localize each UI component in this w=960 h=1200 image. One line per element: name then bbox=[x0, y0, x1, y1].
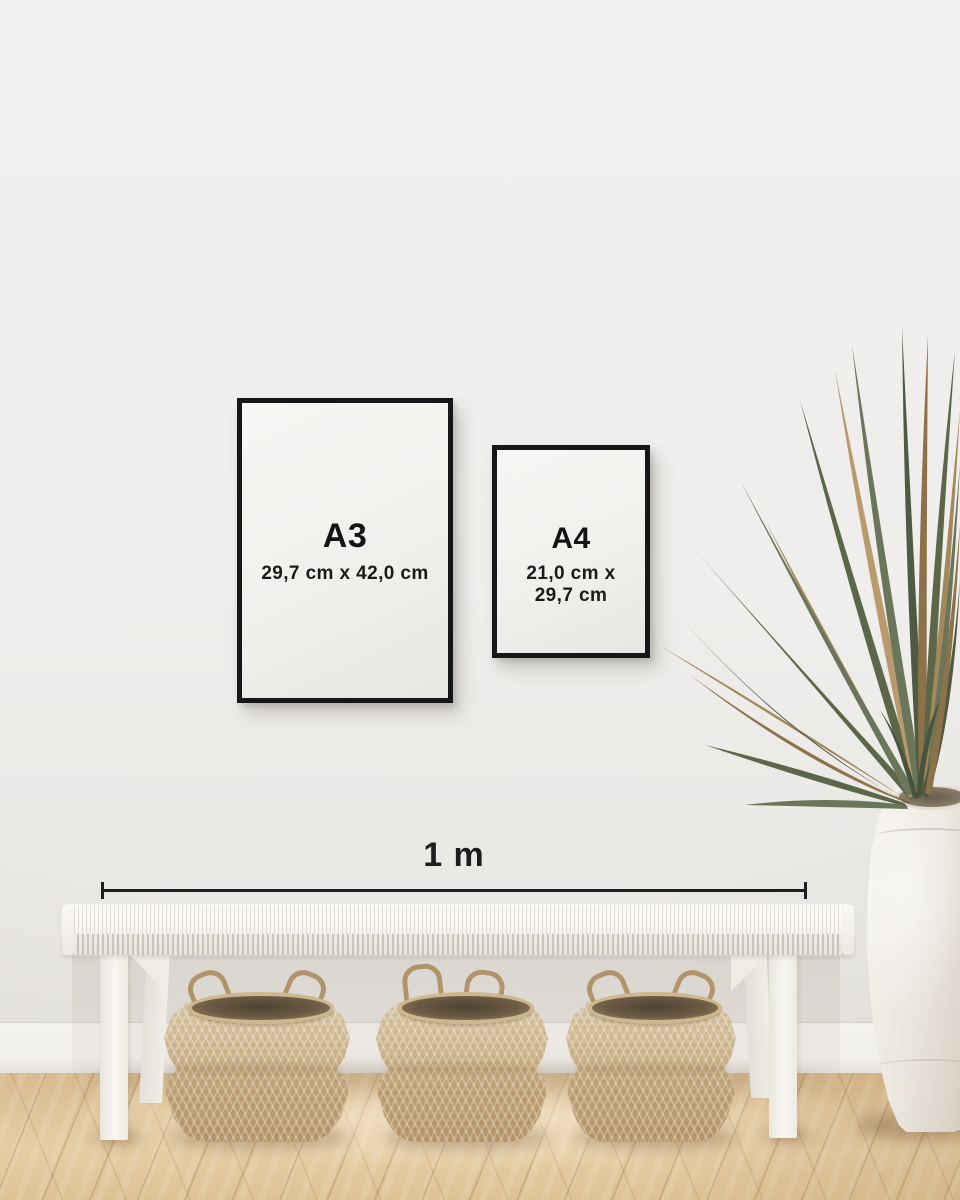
scale-tick-right bbox=[804, 882, 807, 899]
basket-opening bbox=[188, 992, 334, 1024]
bench-leg-front-right bbox=[769, 950, 797, 1138]
basket-fold-line bbox=[383, 1063, 541, 1075]
bench-end-cap-left bbox=[62, 905, 74, 955]
seagrass-basket-2 bbox=[376, 968, 548, 1142]
room-scene: A3 29,7 cm x 42,0 cm A4 21,0 cm x 29,7 c… bbox=[0, 0, 960, 1200]
vase-groove bbox=[876, 1059, 960, 1075]
seagrass-basket-3 bbox=[566, 968, 736, 1142]
bench-woven-seat bbox=[62, 905, 854, 934]
basket-opening bbox=[398, 992, 533, 1024]
a4-dimensions-line2: 29,7 cm bbox=[526, 585, 615, 607]
bench-corner-brace-right bbox=[731, 953, 769, 991]
palm-plant bbox=[610, 315, 960, 810]
poster-frame-a3: A3 29,7 cm x 42,0 cm bbox=[237, 398, 453, 703]
scale-label: 1 m bbox=[101, 836, 807, 875]
bench-end-cap-right bbox=[842, 905, 854, 955]
scale-line bbox=[101, 889, 807, 892]
a4-dimensions: 21,0 cm x 29,7 cm bbox=[526, 563, 615, 608]
a4-dimensions-line1: 21,0 cm x bbox=[526, 563, 615, 585]
bench-leg-front-left bbox=[100, 950, 128, 1140]
basket-fold-line bbox=[171, 1063, 342, 1075]
bench-seat-front-edge bbox=[62, 934, 854, 955]
seagrass-basket-1 bbox=[164, 968, 350, 1142]
a3-size-label: A3 bbox=[261, 519, 428, 555]
palm-fronds bbox=[662, 327, 960, 809]
scale-tick-left bbox=[101, 882, 104, 899]
poster-a4-text-block: A4 21,0 cm x 29,7 cm bbox=[526, 523, 615, 607]
poster-a3: A3 29,7 cm x 42,0 cm bbox=[242, 403, 448, 698]
basket-fold-line bbox=[573, 1063, 729, 1075]
vase-groove bbox=[876, 828, 960, 844]
poster-a3-text-block: A3 29,7 cm x 42,0 cm bbox=[261, 519, 428, 585]
bench-corner-brace-left bbox=[128, 953, 166, 991]
a3-dimensions: 29,7 cm x 42,0 cm bbox=[261, 563, 428, 585]
basket-opening bbox=[588, 992, 722, 1024]
a4-size-label: A4 bbox=[526, 523, 615, 555]
